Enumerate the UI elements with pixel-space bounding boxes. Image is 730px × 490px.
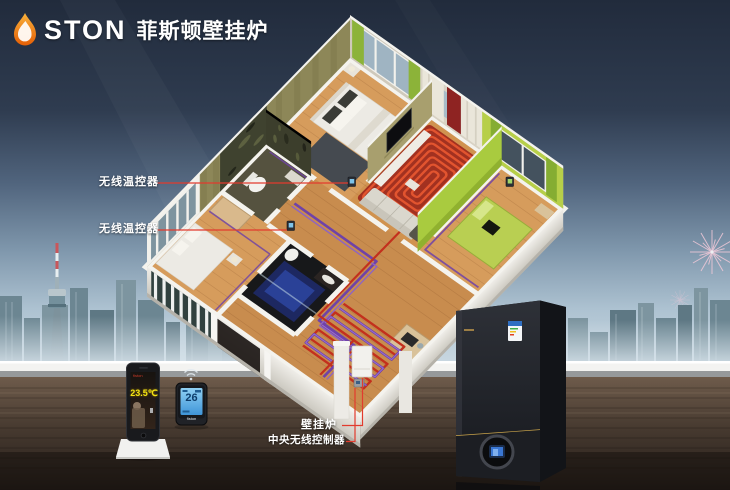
thermostat-temperature: 26 [181,393,202,404]
phone-temperature: 23.5℃ [128,388,160,399]
boiler-unit [456,301,566,490]
flame-icon [10,12,40,48]
product-title: 菲斯顿壁挂炉 [137,15,269,45]
callout-wireless-thermostat-2: 无线温控器 [99,224,159,235]
boiler-dial [481,436,514,469]
indoor-boiler-unit [352,346,372,377]
energy-label [508,321,522,341]
callout-central-controller: 中央无线控制器 [268,435,345,446]
callout-boiler: 壁挂炉 [301,420,337,431]
phone-brand-text: fiston [133,374,143,378]
brand-logo-text: STON [44,15,127,46]
callout-wireless-thermostat-1: 无线温控器 [99,177,159,188]
brand-logo: STON 菲斯顿壁挂炉 [10,12,269,48]
boiler-brand-mark [464,329,474,331]
thermostat-brand-text: fiston [179,417,204,421]
scene-graphic [0,0,730,490]
poster-root: STON 菲斯顿壁挂炉 无线温控器 无线温控器 壁挂炉 中央无线控制器 fist… [0,0,730,490]
